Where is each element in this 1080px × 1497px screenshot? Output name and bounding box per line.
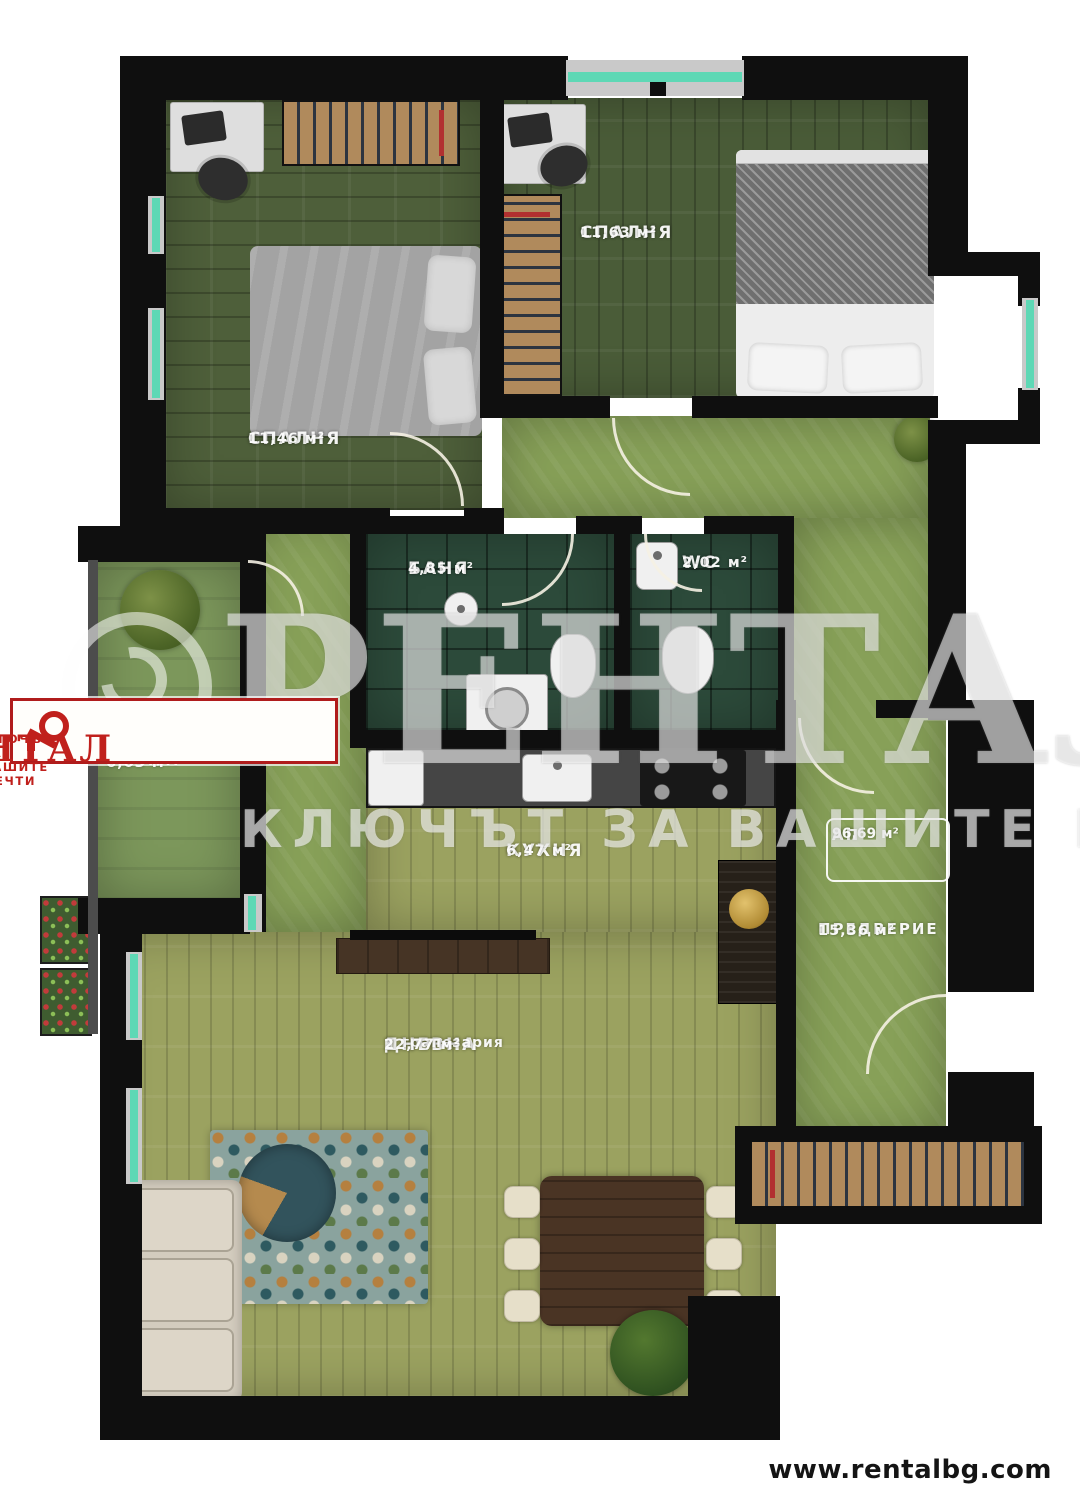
room-area: 2,02 м² — [682, 554, 748, 573]
plant — [610, 1310, 696, 1396]
window-glass — [1026, 300, 1034, 388]
shower-head — [444, 592, 478, 626]
unit-total-area-box: АП 96,69 м² — [826, 818, 950, 882]
pillow — [841, 342, 923, 394]
wardrobe-hangers — [282, 100, 460, 166]
pillow — [423, 346, 477, 426]
website-url: www.rentalbg.com — [768, 1455, 1052, 1485]
dining-chair — [504, 1238, 540, 1270]
shower-dot — [457, 605, 465, 613]
room-area: 11,46 м² — [248, 430, 325, 449]
wall — [120, 56, 166, 534]
laptop-icon — [181, 110, 227, 146]
closet-hangers — [494, 194, 562, 396]
dining-chair — [706, 1238, 742, 1270]
bed — [250, 246, 482, 436]
room-area: 4,85 м² — [408, 560, 474, 579]
wall — [928, 56, 968, 272]
wall — [78, 526, 250, 562]
sofa-cushion — [134, 1258, 234, 1322]
unit-area: 96,69 м² — [832, 826, 899, 842]
pillow — [423, 254, 476, 333]
wall — [614, 534, 630, 748]
window-glass — [568, 72, 742, 82]
entry-wardrobe-hangers — [750, 1140, 1026, 1208]
room-area: 11,63 м² — [580, 224, 657, 243]
wall — [688, 1296, 780, 1440]
floorplan-image: СПАЛНЯ 11,63 м² СПАЛНЯ 11,46 м² БАНЯ 4,8… — [0, 0, 1080, 1497]
sofa-cushion — [134, 1328, 234, 1392]
laptop-icon — [507, 112, 553, 148]
bed — [736, 150, 934, 398]
wall — [78, 898, 250, 934]
room-area: 22,77 м² — [384, 1036, 461, 1055]
toilet — [662, 626, 714, 694]
wall — [120, 56, 568, 100]
window-glass — [130, 1090, 138, 1182]
wall — [480, 98, 504, 418]
red-garment — [504, 212, 550, 217]
agency-logo: РЕНТАЛ КЛЮЧЪТ ЗА ВАШИТЕ МЕЧТИ — [10, 698, 338, 764]
faucet — [553, 761, 562, 770]
logo-tagline-text: КЛЮЧЪТ ЗА ВАШИТЕ МЕЧТИ — [0, 732, 52, 788]
wall — [735, 1206, 1041, 1224]
terrace-tree — [120, 570, 200, 650]
window — [126, 1088, 142, 1184]
entry-console — [718, 860, 778, 1004]
window-mullion — [650, 82, 666, 96]
wall — [735, 1126, 1041, 1142]
headboard — [736, 150, 934, 164]
wall — [480, 396, 610, 418]
window-glass — [130, 954, 138, 1038]
sofa-cushion — [134, 1188, 234, 1252]
wall — [928, 420, 966, 720]
fridge — [368, 750, 424, 806]
window — [148, 196, 164, 254]
wall — [876, 700, 952, 718]
window-glass — [152, 198, 160, 252]
window — [244, 894, 262, 932]
wall — [776, 700, 796, 1142]
window — [126, 952, 142, 1040]
wall — [576, 516, 642, 534]
red-garment — [770, 1150, 775, 1198]
toilet — [550, 634, 596, 698]
wall — [100, 1396, 698, 1440]
room-area: 15,36 м² — [818, 922, 895, 941]
ottoman — [238, 1144, 336, 1242]
room-area: 6,47 м² — [506, 842, 572, 861]
dining-table — [540, 1176, 704, 1326]
cooktop — [640, 750, 746, 806]
dining-chair — [504, 1290, 540, 1322]
terrace-railing — [88, 560, 98, 1034]
kitchen-sink — [522, 754, 592, 802]
window — [1022, 298, 1038, 390]
duvet — [736, 164, 934, 304]
window — [148, 308, 164, 400]
dining-chair — [504, 1186, 540, 1218]
window-glass — [152, 310, 160, 398]
tv — [350, 930, 536, 940]
wall — [948, 700, 1034, 992]
wall — [350, 730, 794, 748]
wall — [692, 396, 938, 418]
flower-box — [40, 968, 92, 1036]
wall — [1024, 1126, 1042, 1224]
red-garment — [439, 110, 444, 156]
tv-console — [336, 938, 550, 974]
washer-door — [485, 687, 529, 731]
pillow — [747, 342, 829, 394]
corridor-floor — [502, 416, 930, 518]
window-glass — [248, 896, 256, 930]
decor-plate — [729, 889, 769, 929]
wall — [350, 516, 366, 748]
wall — [350, 516, 502, 534]
window — [566, 60, 744, 96]
wall — [735, 1126, 751, 1224]
